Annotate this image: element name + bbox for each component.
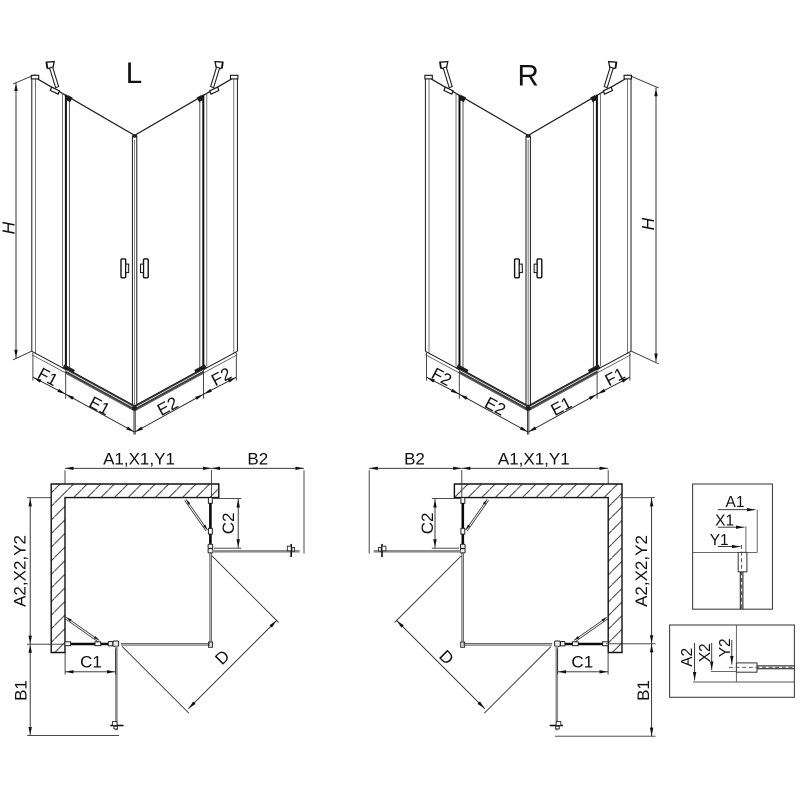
svg-text:A2,X2,Y2: A2,X2,Y2 xyxy=(632,535,651,607)
svg-text:B2: B2 xyxy=(247,449,268,468)
svg-text:Y1: Y1 xyxy=(710,532,729,549)
svg-text:Y2: Y2 xyxy=(717,638,734,657)
svg-text:A1,X1,Y1: A1,X1,Y1 xyxy=(103,449,175,468)
svg-text:B2: B2 xyxy=(404,449,425,468)
svg-text:X2: X2 xyxy=(697,643,714,662)
svg-text:R: R xyxy=(518,60,539,93)
svg-text:C1: C1 xyxy=(80,653,102,672)
svg-text:L: L xyxy=(126,57,142,90)
svg-text:X1: X1 xyxy=(715,513,734,530)
svg-text:C2: C2 xyxy=(219,513,238,535)
svg-text:H: H xyxy=(638,217,658,230)
svg-text:H: H xyxy=(0,221,19,234)
svg-text:B1: B1 xyxy=(634,680,653,701)
svg-text:A1,X1,Y1: A1,X1,Y1 xyxy=(498,449,570,468)
svg-text:C2: C2 xyxy=(418,513,437,535)
svg-text:B1: B1 xyxy=(12,680,31,701)
svg-text:A2: A2 xyxy=(679,648,696,667)
svg-text:C1: C1 xyxy=(571,653,593,672)
svg-text:A2,X2,Y2: A2,X2,Y2 xyxy=(10,535,29,607)
svg-text:A1: A1 xyxy=(726,494,745,511)
